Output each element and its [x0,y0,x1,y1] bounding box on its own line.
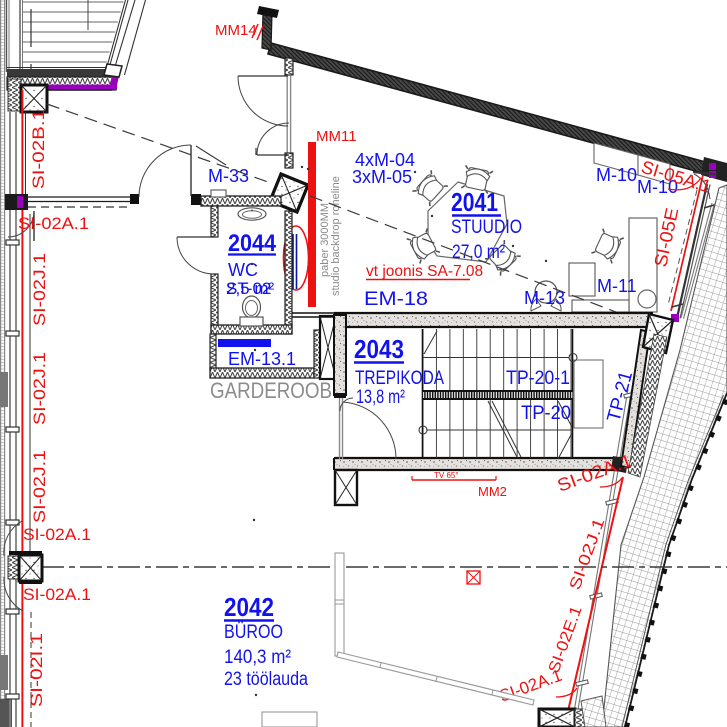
svg-text:studio backdrop roheline: studio backdrop roheline [330,176,342,296]
svg-text:TV 65°: TV 65° [434,471,459,480]
svg-text:STUUDIO: STUUDIO [451,217,522,238]
svg-text:2041: 2041 [451,187,498,217]
svg-text:TP-20: TP-20 [521,403,571,424]
svg-text:23 töölauda: 23 töölauda [224,669,308,690]
svg-text:SI-02J.1: SI-02J.1 [30,352,49,425]
svg-text:MM11: MM11 [316,128,357,145]
svg-text:M-33: M-33 [208,166,249,186]
svg-text:M-13: M-13 [524,288,565,308]
svg-text:SI-02A.1: SI-02A.1 [18,214,89,233]
svg-text:GARDEROOB: GARDEROOB [210,378,332,403]
svg-text:ST-02: ST-02 [226,279,271,298]
svg-text:2042: 2042 [224,592,274,622]
svg-text:140,3 m²: 140,3 m² [224,647,291,668]
svg-text:M-11: M-11 [597,276,637,296]
svg-text:13,8 m²: 13,8 m² [356,387,405,408]
svg-text:SI-02I.1: SI-02I.1 [27,633,46,707]
svg-text:SI-02J.1: SI-02J.1 [30,450,49,523]
svg-text:M-10: M-10 [596,165,637,185]
svg-text:3xM-05: 3xM-05 [352,167,412,187]
svg-text:MM2: MM2 [478,484,507,499]
svg-text:TREPIKODA: TREPIKODA [355,368,444,389]
svg-text:vt joonis SA-7.08: vt joonis SA-7.08 [366,263,483,280]
svg-text:SI-02B.1: SI-02B.1 [29,109,48,189]
svg-text:EM-18: EM-18 [364,289,428,310]
svg-text:MM14: MM14 [215,22,257,39]
svg-text:SI-02J.1: SI-02J.1 [30,253,49,326]
svg-text:BÜROO: BÜROO [224,622,283,643]
svg-text:SI-02A.1: SI-02A.1 [23,585,91,604]
svg-text:EM-13.1: EM-13.1 [228,349,296,369]
svg-text:paber 3000MM: paber 3000MM [319,203,331,277]
svg-text:2043: 2043 [354,334,404,364]
svg-text:TP-20-1: TP-20-1 [506,368,570,389]
svg-text:WC: WC [228,260,258,280]
svg-text:SI-02A.1: SI-02A.1 [23,525,91,544]
svg-text:2044: 2044 [228,230,277,257]
